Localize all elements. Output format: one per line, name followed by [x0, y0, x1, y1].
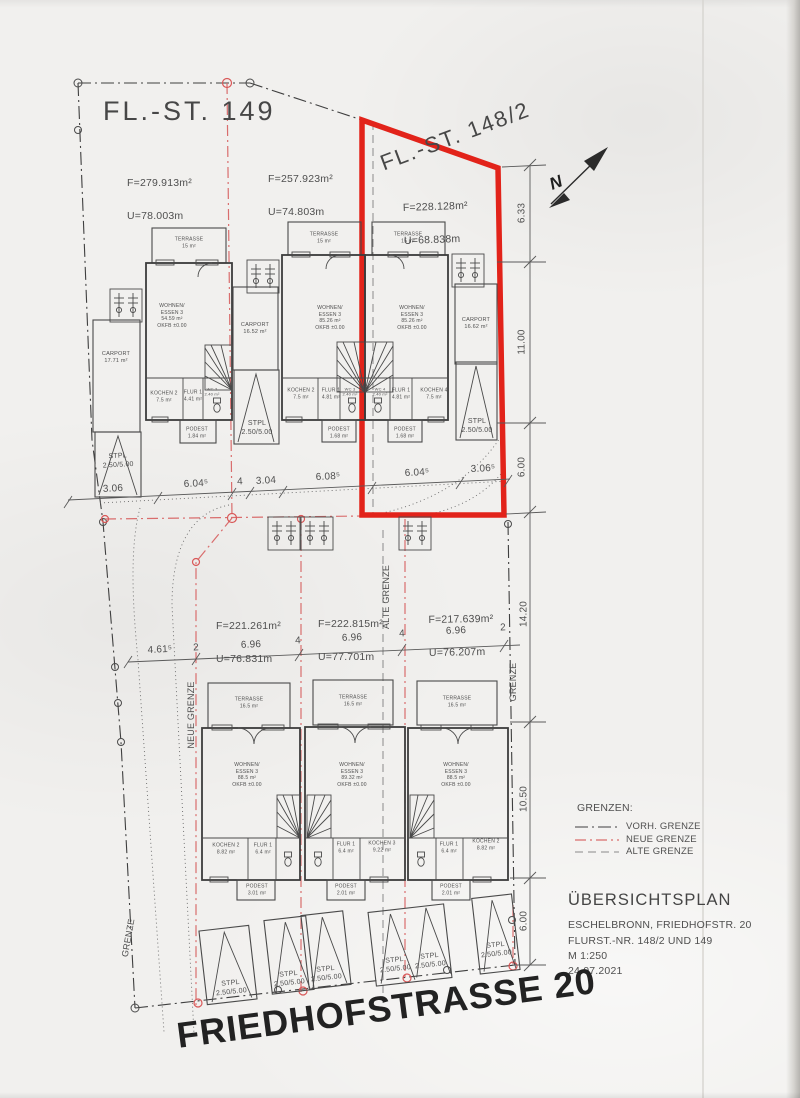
- house-bottom-2: [305, 680, 405, 900]
- plot-u-value: U=76.831m: [216, 651, 281, 667]
- alte-grenze-label: ALTE GRENZE: [381, 565, 393, 629]
- dimension-label: 10.50: [517, 786, 530, 812]
- room-wohnen-label: WOHNEN/ ESSEN 3 88.5 m² OKFB ±0.00: [441, 762, 470, 788]
- stpl-label: STPL 2.50/5.00: [273, 968, 306, 990]
- dimension-label: 6.96: [241, 638, 262, 652]
- room-flur-label: FLUR 1 6.4 m²: [440, 841, 458, 854]
- stpl-label: STPL 2.50/5.00: [379, 954, 412, 976]
- plot-area-label-1: F=279.913m² U=78.003m: [127, 159, 192, 240]
- stpl-label: STPL 2.50/5.00: [242, 419, 273, 437]
- room-wohnen-label: WOHNEN/ ESSEN 3 88.5 m² OKFB ±0.00: [232, 762, 261, 788]
- dimension-label: 3.06: [103, 482, 124, 496]
- dimension-label: 6.96: [446, 624, 467, 638]
- room-terrasse-label: TERRASSE 15 m²: [310, 231, 339, 244]
- grenze-right-label: GRENZE: [508, 663, 520, 702]
- dimension-label: 6.00: [515, 457, 528, 477]
- stpl-label: STPL 2.50/5.00: [310, 963, 343, 985]
- plot-f-value: F=221.261m²: [216, 618, 281, 634]
- room-kochen-label: KOCHEN 2 7.5 m²: [150, 390, 177, 403]
- room-kochen-label: KOCHEN 2 8.82 m²: [212, 842, 239, 855]
- room-wc-label: WC 2 2.40 m²: [205, 387, 220, 398]
- plot-u-value: U=74.803m: [268, 204, 333, 220]
- room-carport-label: CARPORT 17.71 m²: [102, 351, 130, 366]
- room-terrasse-label: TERRASSE 15 m²: [175, 236, 204, 249]
- plot-u-value: U=76.207m: [429, 644, 494, 661]
- room-flur-label: FLUR 1 6.4 m²: [254, 842, 272, 855]
- room-podest-label: PODEST 3.01 m²: [246, 883, 268, 896]
- stpl-label: STPL 2.50/5.00: [462, 417, 493, 435]
- stpl-label: STPL 2.50/5.00: [480, 939, 513, 961]
- room-podest-label: PODEST 1.68 m²: [394, 426, 416, 439]
- room-terrasse-label: TERRASSE 16.5 m²: [235, 696, 264, 709]
- dimension-label: 14.20: [517, 601, 530, 627]
- room-flur-label: FLUR 1 6.4 m²: [337, 841, 355, 854]
- site-plan-scan: FL.-ST. 149 FL.-ST. 148/2 N F=279.913m² …: [0, 0, 800, 1098]
- plot-f-value: F=279.913m²: [127, 175, 192, 191]
- room-flur-label: FLUR 1 4.41 m²: [184, 389, 202, 402]
- room-wohnen-label: WOHNEN/ ESSEN 3 85.26 m² OKFB ±0.00: [397, 305, 426, 331]
- room-terrasse-label: TERRASSE 15 m²: [394, 231, 423, 244]
- room-wc-label: WC 3 2.40 m²: [343, 387, 358, 398]
- dimension-label: 2: [500, 621, 506, 634]
- house-bottom-3: [408, 681, 508, 900]
- room-kochen-label: KOCHEN 2 8.82 m²: [472, 838, 499, 851]
- dimension-label: 6.96: [342, 631, 363, 645]
- stpl-label: STPL 2.50/5.00: [414, 950, 447, 972]
- plot-area-label-3: F=228.128m² U=68.838m: [402, 182, 470, 266]
- plot-u-value: U=78.003m: [127, 208, 192, 224]
- parcel-149-label: FL.-ST. 149: [103, 94, 276, 130]
- dimension-label: 6.04⁵: [183, 477, 208, 491]
- stpl-label: STPL 2.50/5.00: [215, 977, 248, 999]
- legend-item-alte-grenze: ALTE GRENZE: [626, 846, 693, 859]
- room-flur-label: FLUR 1 4.81 m²: [392, 387, 410, 400]
- house-top-2: [282, 222, 365, 442]
- room-carport-label: CARPORT 16.52 m²: [241, 322, 269, 337]
- carports: [93, 284, 497, 432]
- dimension-label: 6.08⁵: [315, 470, 340, 484]
- room-kochen-label: KOCHEN 4 7.5 m²: [420, 387, 447, 400]
- room-podest-label: PODEST 1.68 m²: [328, 426, 350, 439]
- dimension-label: 4: [399, 627, 405, 640]
- titleblock-parcels: FLURST.-NR. 148/2 UND 149: [568, 935, 712, 949]
- room-podest-label: PODEST 1.84 m²: [186, 426, 208, 439]
- stpl-label: STPL 2.50/5.00: [102, 451, 134, 471]
- room-carport-label: CARPORT 16.62 m²: [462, 317, 490, 332]
- dimension-label: 4: [237, 475, 243, 488]
- parking-stalls-top: [95, 362, 497, 497]
- room-terrasse-label: TERRASSE 16.5 m²: [339, 694, 368, 707]
- house-bottom-1: [202, 683, 300, 900]
- plot-area-label-2: F=257.923m² U=74.803m: [268, 155, 333, 236]
- dimension-label: 2: [193, 641, 199, 654]
- room-kochen-label: KOCHEN 3 9.22 m²: [368, 840, 395, 853]
- dimension-label: 6.04⁵: [404, 466, 429, 480]
- legend-line-samples: [575, 827, 619, 852]
- room-podest-label: PODEST 2.01 m²: [335, 883, 357, 896]
- room-kochen-label: KOCHEN 2 7.5 m²: [287, 387, 314, 400]
- dimension-label: 6.33: [515, 203, 528, 223]
- plot-u-value: U=77.701m: [318, 649, 383, 665]
- dimension-label: 4.61⁵: [147, 643, 172, 657]
- plot-f-value: F=228.128m²: [403, 198, 468, 217]
- plot-f-value: F=222.815m²: [318, 616, 383, 632]
- legend-item-neue-grenze: NEUE GRENZE: [626, 834, 697, 847]
- dimension-label: 6.00: [517, 911, 530, 931]
- room-terrasse-label: TERRASSE 16.5 m²: [443, 695, 472, 708]
- room-wohnen-label: WOHNEN/ ESSEN 3 54.59 m² OKFB ±0.00: [157, 303, 186, 329]
- neue-grenze-label: NEUE GRENZE: [186, 681, 198, 748]
- room-wohnen-label: WOHNEN/ ESSEN 3 89.32 m² OKFB ±0.00: [337, 762, 366, 788]
- dimension-label: 3.06⁵: [470, 462, 495, 476]
- titleblock-title: ÜBERSICHTSPLAN: [568, 890, 731, 912]
- room-flur-label: FLUR 1 4.81 m²: [322, 387, 340, 400]
- dimension-label: 11.00: [515, 329, 528, 354]
- room-wc-label: WC 4 2.40 m²: [373, 387, 388, 398]
- dimension-label: 4: [295, 634, 301, 647]
- plot-f-value: F=257.923m²: [268, 171, 333, 187]
- room-podest-label: PODEST 2.01 m²: [440, 883, 462, 896]
- room-wohnen-label: WOHNEN/ ESSEN 3 85.26 m² OKFB ±0.00: [315, 305, 344, 331]
- dimension-label: 3.04: [256, 474, 277, 488]
- titleblock-address: ESCHELBRONN, FRIEDHOFSTR. 20: [568, 919, 752, 933]
- legend-item-vorh-grenze: VORH. GRENZE: [626, 821, 701, 834]
- legend-title: GRENZEN:: [577, 802, 633, 816]
- house-top-1: [146, 228, 232, 443]
